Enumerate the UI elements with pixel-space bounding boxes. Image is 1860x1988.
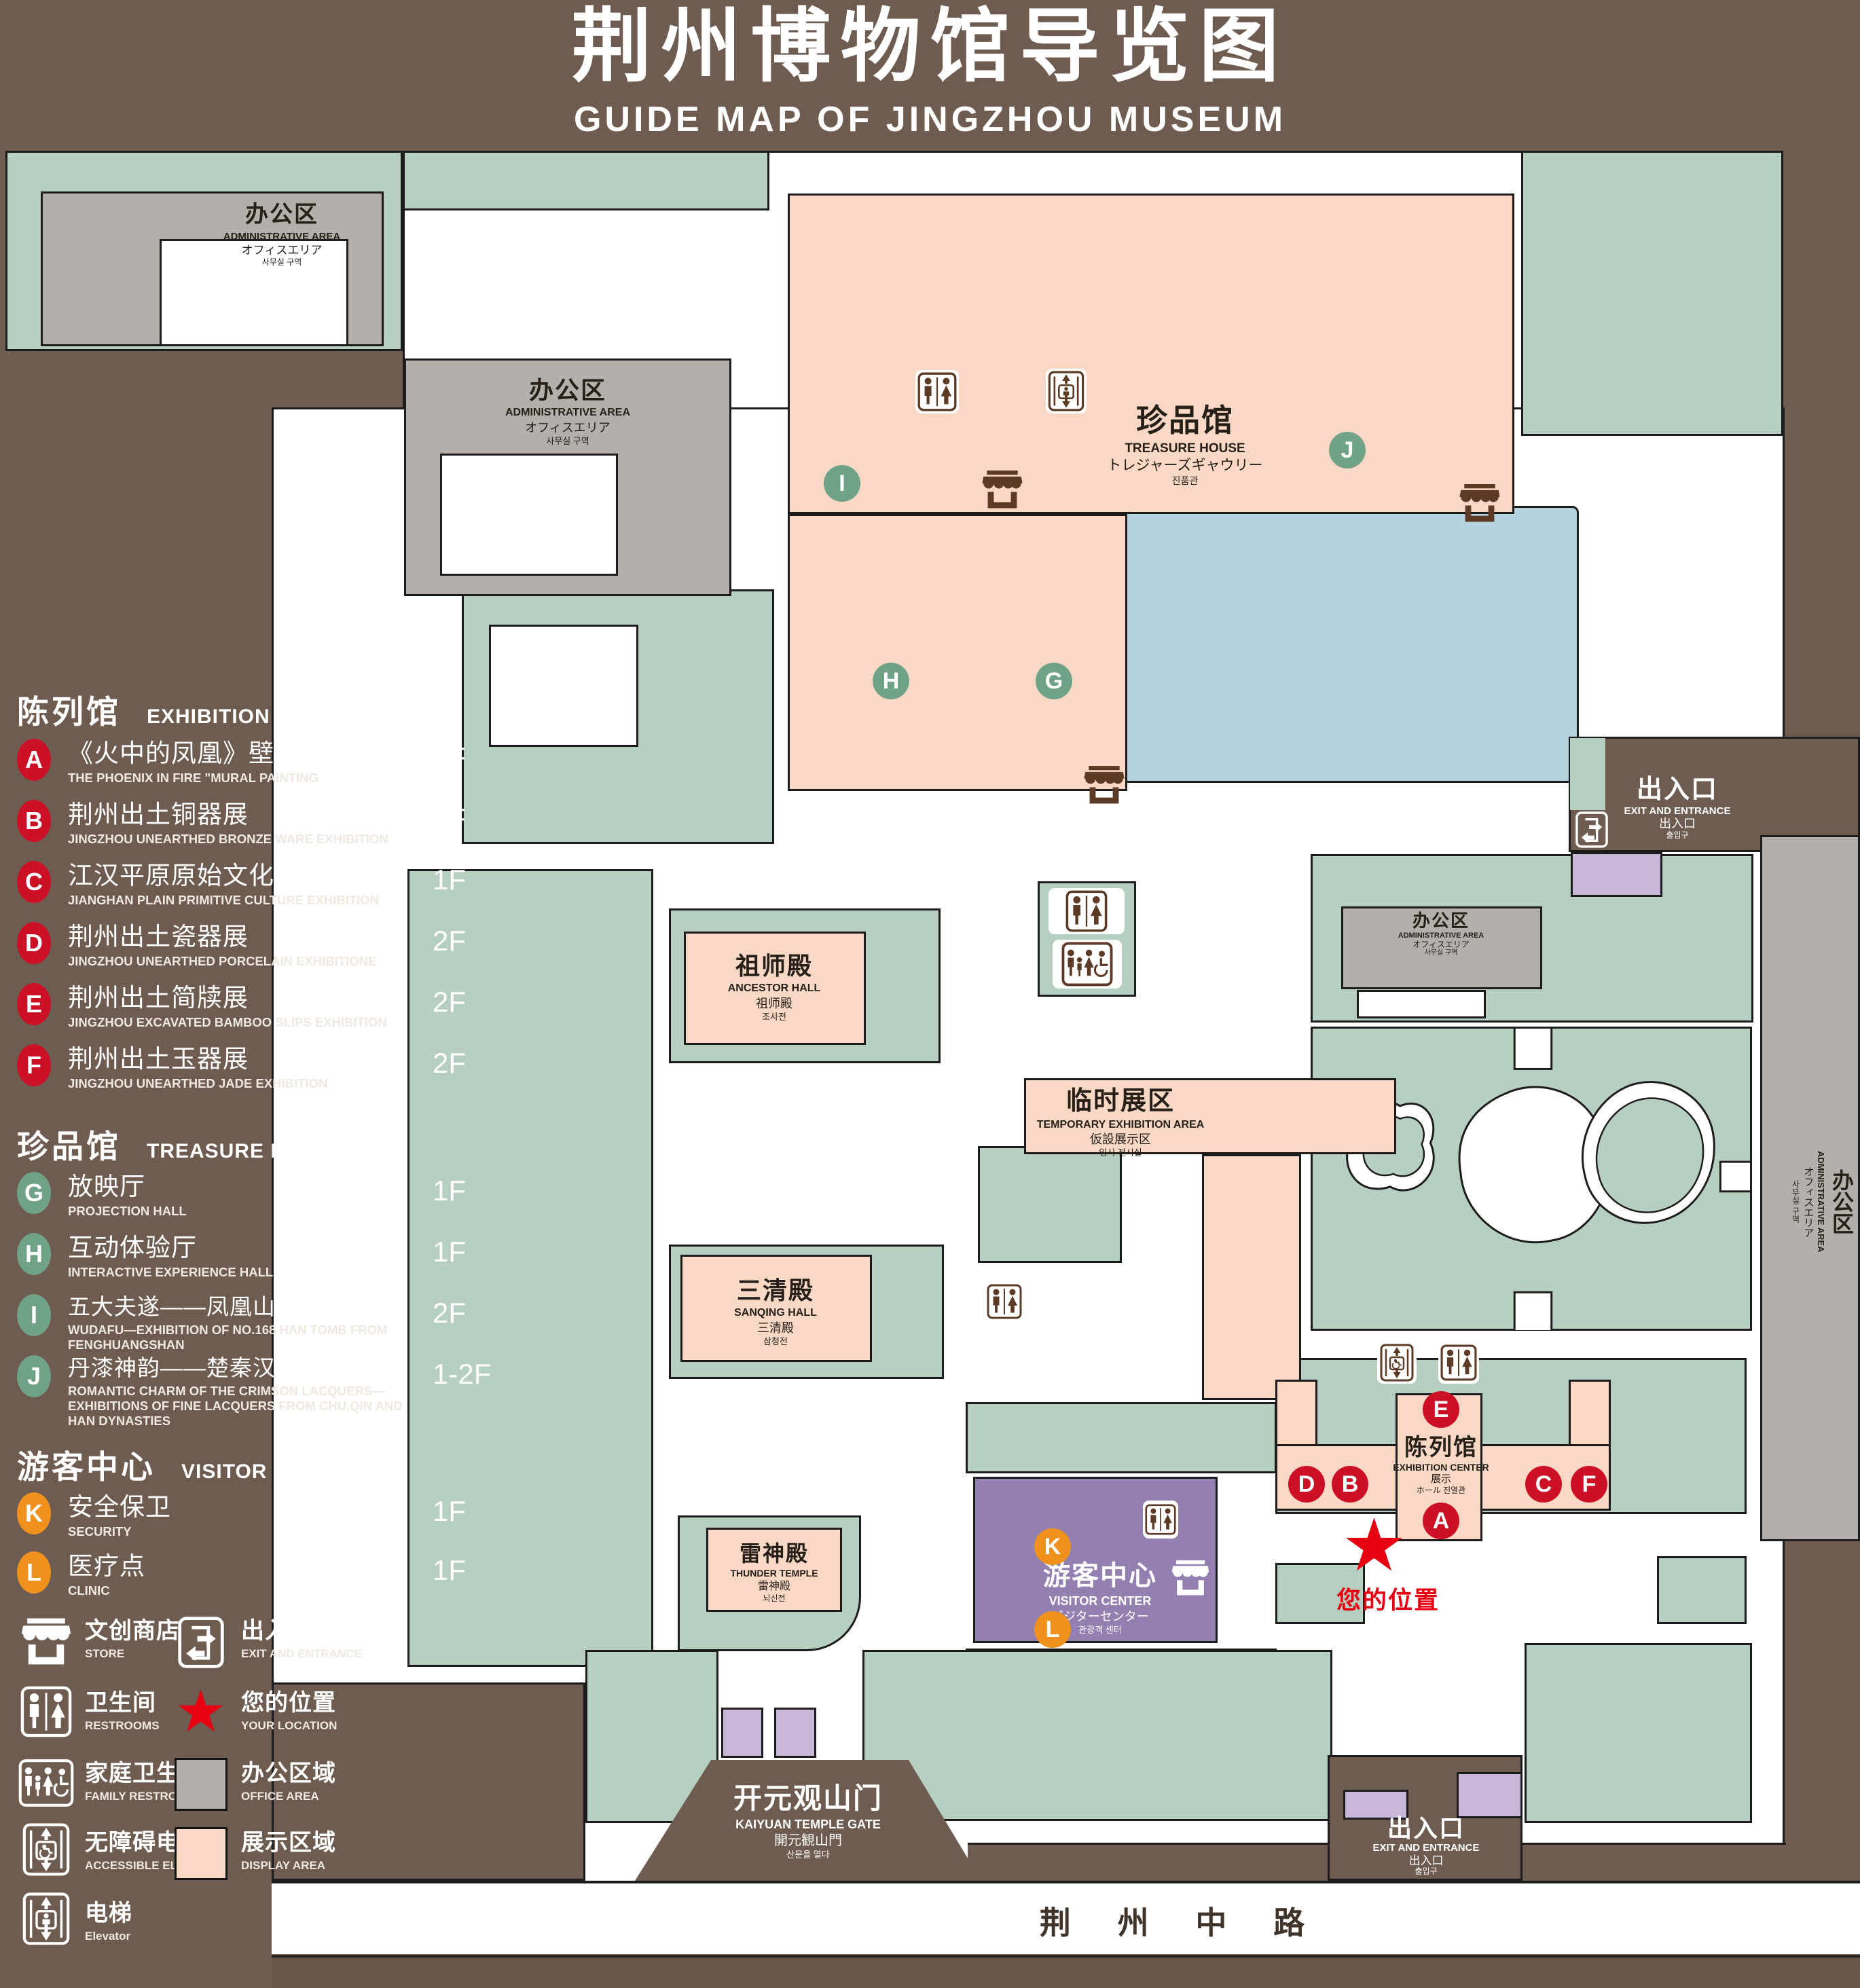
floor-tag: 2F [433,986,466,1018]
green-vc-top [966,1402,1277,1473]
section-title-zh: 陈列馆 [17,694,121,730]
family-restrooms-icon [1053,940,1122,989]
green-garden [1311,1027,1752,1331]
floor-tag: 1-2F [433,1358,491,1391]
map-badge-g: G [1036,663,1072,699]
admin-top-left-label: 办公区 ADMINISTRATIVE AREA オフィスエリア 사무실 구역 [173,200,390,268]
map-badge-a: A [1423,1503,1459,1539]
badge-a: A [17,739,51,781]
badge-j: J [17,1355,51,1397]
symbol-label-elevator: 电梯 Elevator [85,1900,132,1943]
exit-icon [1575,811,1608,849]
map-badge-d: D [1288,1466,1325,1503]
badge-f: F [17,1044,51,1086]
store-icon [1459,484,1501,523]
symbol-label-your-location: 您的位置 YOUR LOCATION [241,1689,337,1733]
title-chinese: 荆州博物馆导览图 [0,5,1860,90]
badge-e: E [17,983,51,1025]
badge-d: D [17,922,51,964]
green-top-band [403,151,769,210]
green-temp-left [978,1146,1122,1263]
symbol-label-store: 文创商店 STORE [85,1617,180,1661]
section-title-zh: 游客中心 [17,1449,156,1485]
map-badge-h: H [873,663,909,699]
restrooms-icon [915,370,959,413]
map-badge-i: I [824,465,860,502]
temporary-area-label: 临时展区 TEMPORARY EXHIBITION AREA 仮設展示区 임시 … [981,1085,1260,1159]
badge-l: L [17,1551,51,1594]
floor-tag: 1F [433,1236,466,1268]
your-location-star: ★ [1341,1509,1407,1582]
exit-bottom-label: 出入口 EXIT AND ENTRANCE 出入口 출입구 [1321,1814,1531,1877]
section-title-en: EXHIBITION CENTER [147,705,364,728]
floor-tag: 1F [433,1175,466,1207]
badge-b: B [17,800,51,842]
badge-c: C [17,861,51,903]
restrooms-icon [1143,1501,1178,1539]
store-icon [17,1611,75,1674]
symbol-label-display-area: 展示区域 DISPLAY AREA [241,1829,336,1873]
guide-map-page: { "title": {"zh": "荆州博物馆导览图", "en": "GUI… [0,0,1860,1988]
restrooms-icon [1048,888,1125,934]
floor-tag: 2F [433,1297,466,1329]
map-badge-k: K [1034,1528,1071,1565]
badge-g: G [17,1172,51,1214]
page-title: 荆州博物馆导览图 GUIDE MAP OF JINGZHOU MUSEUM [0,5,1860,140]
restrooms-icon [17,1680,75,1743]
admin-strip-label: 办公区 ADMINISTRATIVE AREA オフィスエリア 사무실 구역 [1764,1059,1856,1344]
legend-panel: 陈列馆EXHIBITION CENTER A 《火中的凤凰》壁画THE PHOE… [17,686,523,1976]
store-icon [981,471,1023,510]
treasure-house-label: 珍品馆 TREASURE HOUSE トレジャーズギャウリー 진품관 [1063,401,1307,487]
floor-tag: 2F [433,925,466,957]
admin-top-courtyard [440,454,618,576]
green-exit-right-notch [1570,738,1605,810]
road-name: 荆 州 中 路 [944,1898,1419,1943]
map-badge-b: B [1332,1466,1368,1503]
office-swatch [172,1753,230,1816]
your-location-label: 您的位置 [1336,1581,1440,1616]
sanqing-hall-label: 三清殿 SANQING HALL 三清殿 삼청전 [674,1275,877,1347]
floor-tag: 1F [433,803,466,835]
exhibition-center-arm-right [1569,1380,1611,1446]
store-icon [1083,766,1125,805]
elevator-icon [17,1888,75,1950]
garden-paths [1313,1029,1750,1330]
badge-k: K [17,1492,51,1534]
purple-building-bottom-2 [1457,1772,1522,1818]
symbol-label-office-area: 办公区域 OFFICE AREA [241,1760,336,1803]
exit-icon [172,1611,230,1674]
treasure-house-wing [788,514,1127,791]
restrooms-icon [985,1278,1024,1325]
title-english: GUIDE MAP OF JINGZHOU MUSEUM [0,99,1860,140]
section-title-zh: 珍品馆 [17,1128,121,1164]
gate-pillar-left [721,1708,763,1758]
floor-tag: 2F [433,1047,466,1080]
floor-tag: 1F [433,864,466,896]
accessible-elevator-icon [17,1818,75,1881]
map-badge-l: L [1034,1611,1071,1648]
purple-building-right-exit [1571,852,1662,897]
location-star: ★ [172,1680,230,1743]
gate-pillar-right [774,1708,816,1758]
green-top-right [1521,151,1783,436]
badge-h: H [17,1233,51,1275]
symbol-label-restrooms: 卫生间 RESTROOMS [85,1689,160,1733]
section-title-en: TREASURE HOUSE [147,1140,346,1162]
display-swatch [172,1822,230,1885]
legend-section-visitor-center: 游客中心VISITOR CENTER [17,1441,361,1488]
exit-right-label: 出入口 EXIT AND ENTRANCE 出入口 출입구 [1616,775,1738,840]
map-badge-j: J [1329,432,1366,468]
symbol-label-exit: 出入口 EXIT AND ENTRANCE [241,1617,362,1661]
map-badge-f: F [1571,1466,1607,1503]
floor-tag: 1F [433,741,466,774]
store-icon [1171,1558,1209,1599]
ancestor-hall-label: 祖师殿 ANCESTOR HALL 祖师殿 조사전 [672,951,876,1023]
legend-section-treasure-house: 珍品馆TREASURE HOUSE [17,1120,346,1167]
restrooms-icon [1438,1342,1479,1384]
admin-mid-label: 办公区 ADMINISTRATIVE AREA オフィスエリア 사무실 구역 [1414,911,1468,957]
temporary-area-column [1202,1154,1301,1400]
map-badge-e: E [1423,1391,1459,1428]
badge-i: I [17,1294,51,1336]
family-restrooms-icon [17,1752,75,1814]
green-exit-right-patch [1525,1643,1752,1823]
map-badge-c: C [1525,1466,1562,1503]
exhibition-center-label: 陈列馆 EXHIBITION CENTER 展示 ホール 진열관 [1353,1434,1529,1495]
legend-section-exhibition-center: 陈列馆EXHIBITION CENTER [17,686,364,733]
accessible-elevator-icon [1377,1342,1417,1384]
exhibition-center-arm-left [1275,1380,1317,1446]
section-title-en: VISITOR CENTER [181,1460,361,1483]
floor-tag: 1F [433,1554,466,1587]
thunder-temple-label: 雷神殿 THUNDER TEMPLE 雷神殿 뇌신전 [672,1540,876,1604]
floor-tag: 1F [433,1495,466,1528]
gate-label: 开元观山门 KAIYUAN TEMPLE GATE 開元観山門 산문을 열다 [635,1780,981,1861]
admin-top-label: 办公区 ADMINISTRATIVE AREA オフィスエリア 사무실 구역 [459,375,676,447]
elevator-icon [1046,369,1087,413]
green-ec-corner-right [1657,1556,1747,1624]
admin-mid-courtyard [1357,990,1486,1018]
